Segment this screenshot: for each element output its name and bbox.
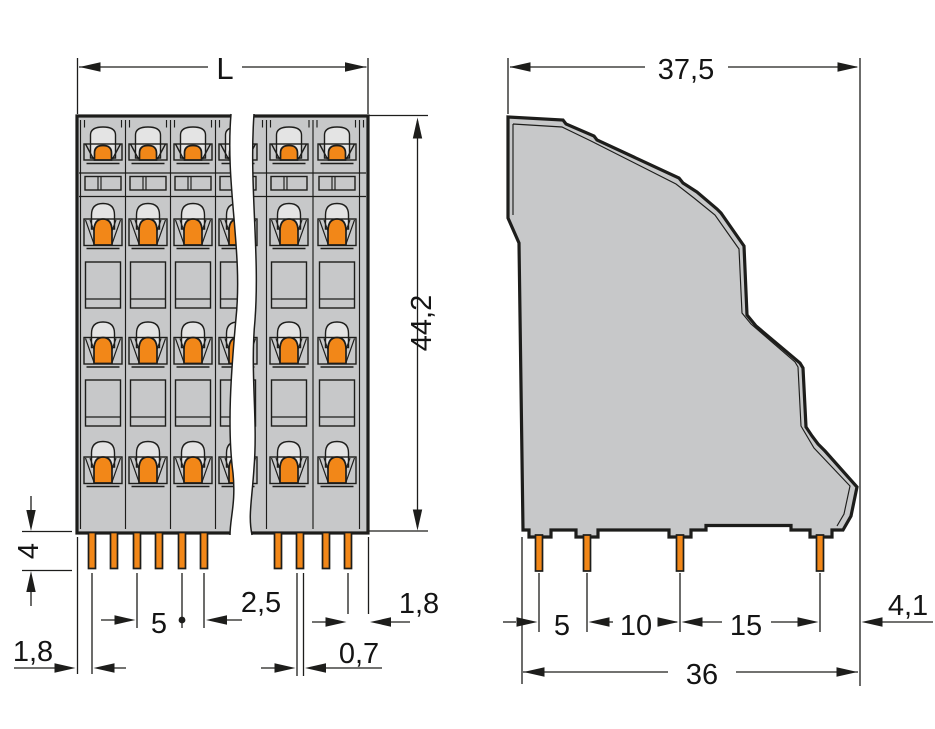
side-view — [508, 117, 857, 571]
pin — [201, 533, 208, 569]
pin — [134, 533, 141, 569]
pin — [179, 533, 186, 569]
dim-overall-depth-label: 37,5 — [658, 54, 714, 86]
dim-pin-length-label: 4 — [13, 543, 45, 559]
dim-pin-spacing-middle-label: 10 — [620, 610, 652, 642]
dim-overall-height: 44,2 — [369, 116, 438, 532]
pin — [536, 535, 543, 571]
pin — [323, 533, 330, 569]
pin — [817, 535, 824, 571]
dim-overall-length-label: L — [216, 51, 233, 86]
drawing-canvas: L 44,2 4 1,8 5 2,5 1,8 — [0, 0, 935, 729]
dim-pin-width-label: 0,7 — [339, 638, 379, 670]
pin — [584, 535, 591, 571]
pin — [111, 533, 118, 569]
pin — [677, 535, 684, 571]
dim-pin-spacing-front-label: 5 — [554, 610, 570, 642]
dim-pin-row-chain: 5 10 15 — [503, 573, 820, 642]
dim-origin-dot — [179, 617, 186, 624]
pin — [275, 533, 282, 569]
dim-pin-field-depth: 36 — [522, 537, 858, 691]
pin — [297, 533, 304, 569]
dim-back-edge-offset: 4,1 — [862, 590, 934, 627]
dim-right-edge-offset-label: 1,8 — [399, 588, 439, 620]
dim-pin-spacing-back-label: 15 — [730, 610, 762, 642]
dim-pin-length: 4 — [13, 496, 72, 606]
pin — [345, 533, 352, 569]
dim-pin-field-depth-label: 36 — [686, 659, 718, 691]
side-housing-profile — [508, 117, 857, 537]
dim-overall-length: L — [78, 51, 369, 114]
dim-left-edge-offset-label: 1,8 — [13, 636, 53, 668]
dim-pole-pitch-label: 5 — [151, 608, 167, 640]
dim-back-edge-offset-label: 4,1 — [888, 590, 928, 622]
dim-right-edge-offset: 1,8 — [312, 537, 439, 627]
pin — [89, 533, 96, 569]
dim-overall-height-label: 44,2 — [406, 295, 438, 351]
technical-drawing: L 44,2 4 1,8 5 2,5 1,8 — [0, 0, 935, 729]
pin — [156, 533, 163, 569]
dim-pin-pair-spacing-label: 2,5 — [241, 587, 281, 619]
dim-pin-pair-spacing: 2,5 — [204, 573, 281, 628]
front-view — [77, 114, 369, 569]
dim-pole-pitch: 5 — [101, 573, 185, 640]
